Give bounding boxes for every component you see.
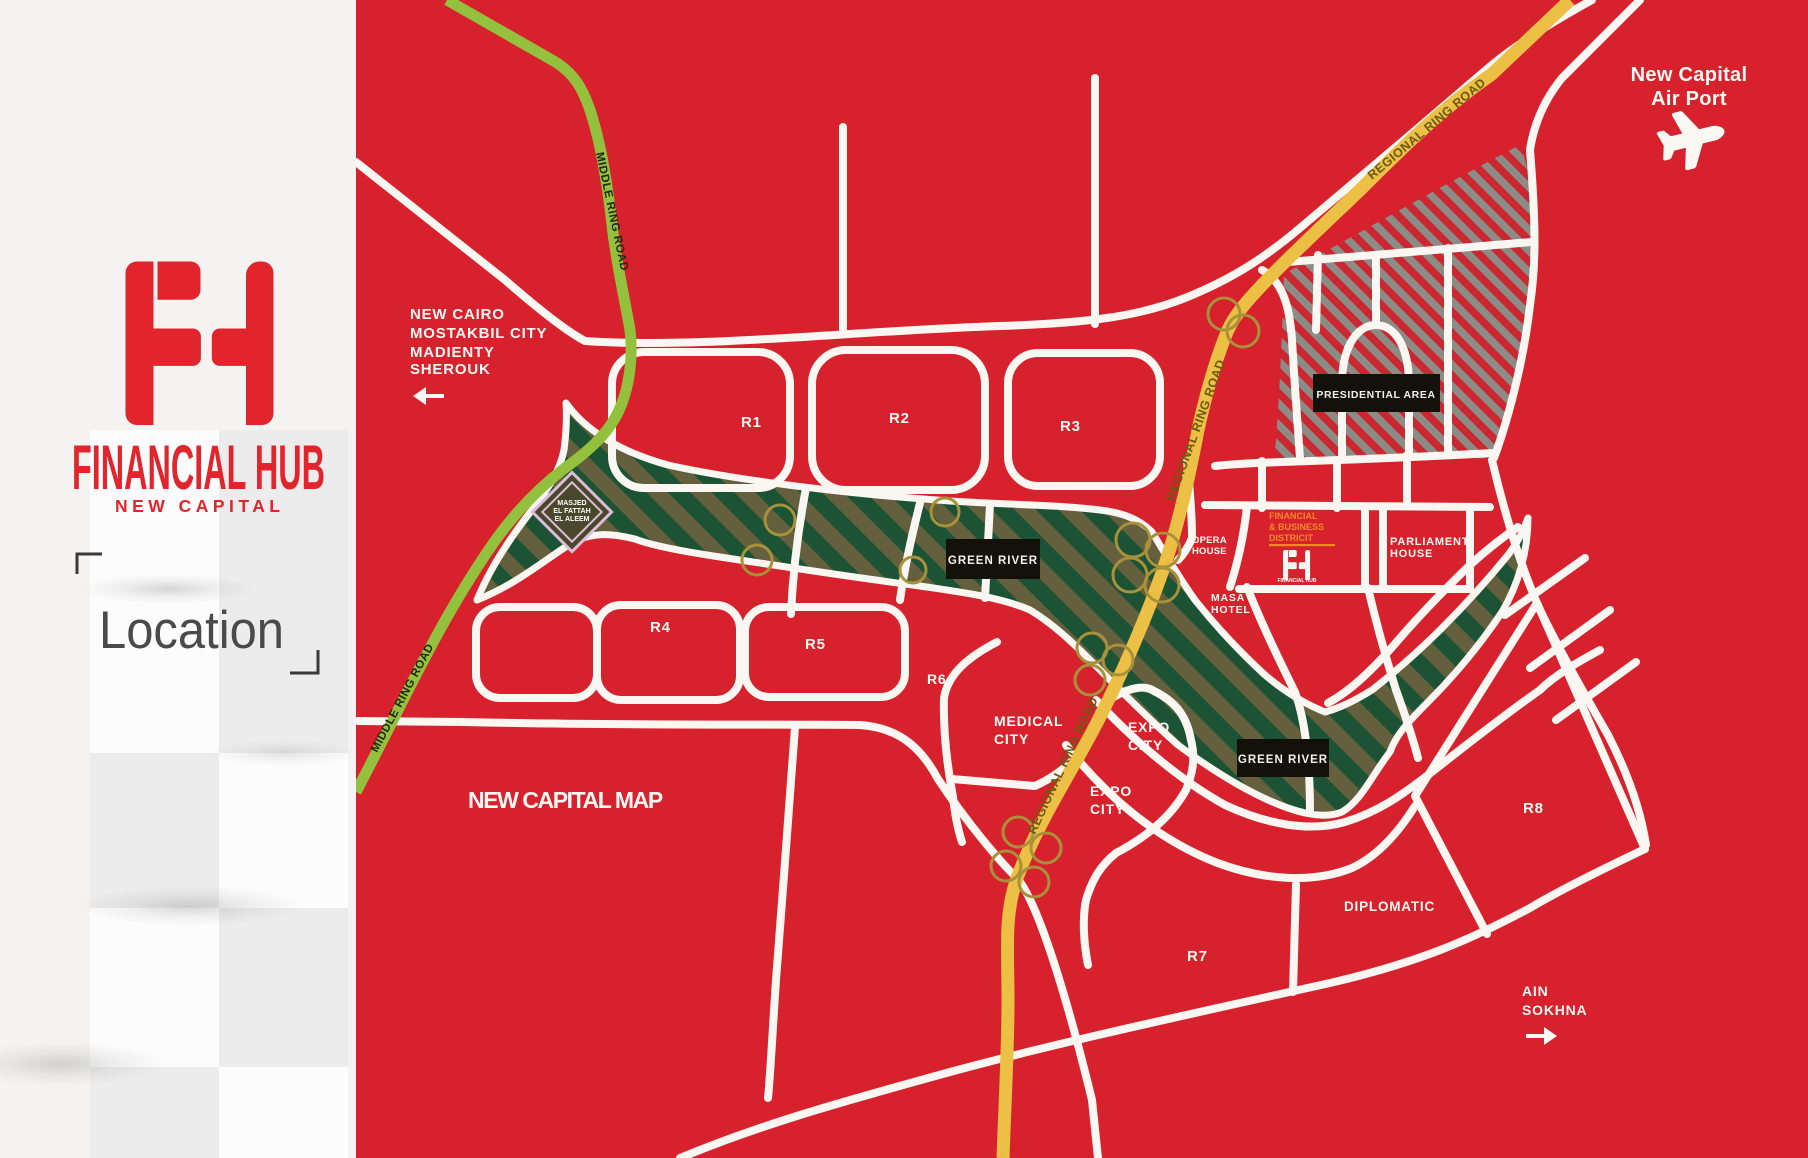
svg-text:NEW CAPITAL MAP: NEW CAPITAL MAP bbox=[468, 787, 664, 813]
svg-text:OPERA: OPERA bbox=[1192, 535, 1227, 546]
svg-text:SHEROUK: SHEROUK bbox=[410, 361, 491, 378]
svg-text:R8: R8 bbox=[1523, 800, 1544, 817]
svg-text:MOSTAKBIL CITY: MOSTAKBIL CITY bbox=[410, 325, 547, 342]
svg-text:MASA: MASA bbox=[1211, 592, 1245, 604]
svg-text:DIPLOMATIC: DIPLOMATIC bbox=[1344, 899, 1435, 914]
svg-text:DISTRICIT: DISTRICIT bbox=[1269, 533, 1314, 543]
svg-text:FINANCIAL: FINANCIAL bbox=[1269, 511, 1318, 521]
svg-text:GREEN RIVER: GREEN RIVER bbox=[948, 555, 1038, 567]
svg-text:AIN: AIN bbox=[1522, 983, 1549, 999]
svg-text:SOKHNA: SOKHNA bbox=[1522, 1002, 1587, 1018]
svg-text:R6: R6 bbox=[927, 671, 947, 687]
svg-text:FINANCIAL HUB: FINANCIAL HUB bbox=[1277, 578, 1316, 584]
svg-text:EL ALEEM: EL ALEEM bbox=[554, 516, 589, 523]
svg-text:HOUSE: HOUSE bbox=[1390, 548, 1433, 560]
svg-text:R2: R2 bbox=[889, 410, 910, 427]
svg-text:MEDICAL: MEDICAL bbox=[994, 713, 1063, 729]
svg-text:R7: R7 bbox=[1187, 948, 1208, 965]
svg-text:HOTEL: HOTEL bbox=[1211, 604, 1251, 616]
svg-text:PRESIDENTIAL AREA: PRESIDENTIAL AREA bbox=[1316, 389, 1435, 401]
svg-text:New Capital: New Capital bbox=[1631, 64, 1748, 86]
svg-text:GREEN RIVER: GREEN RIVER bbox=[1238, 754, 1328, 766]
svg-text:PARLIAMENT: PARLIAMENT bbox=[1390, 536, 1469, 548]
svg-text:CITY: CITY bbox=[1090, 801, 1125, 817]
svg-text:HOUSE: HOUSE bbox=[1192, 546, 1227, 557]
svg-text:CITY: CITY bbox=[994, 731, 1029, 747]
svg-text:EXPO: EXPO bbox=[1128, 719, 1170, 735]
svg-text:EL FATTAH: EL FATTAH bbox=[553, 508, 590, 515]
svg-text:CITY: CITY bbox=[1128, 737, 1163, 753]
svg-text:& BUSINESS: & BUSINESS bbox=[1269, 522, 1324, 532]
svg-text:R3: R3 bbox=[1060, 418, 1081, 435]
svg-text:Location: Location bbox=[99, 601, 284, 660]
svg-text:MADIENTY: MADIENTY bbox=[410, 344, 495, 361]
svg-text:EXPO: EXPO bbox=[1090, 783, 1132, 799]
svg-text:R4: R4 bbox=[650, 619, 671, 636]
svg-text:R5: R5 bbox=[805, 636, 826, 653]
svg-text:NEW CAIRO: NEW CAIRO bbox=[410, 306, 505, 323]
svg-text:NEW CAPITAL: NEW CAPITAL bbox=[115, 496, 280, 516]
svg-text:FINANCIAL HUB: FINANCIAL HUB bbox=[72, 433, 325, 503]
svg-text:Air Port: Air Port bbox=[1651, 88, 1727, 110]
svg-text:MASJED: MASJED bbox=[557, 500, 586, 507]
svg-text:R1: R1 bbox=[741, 414, 762, 431]
